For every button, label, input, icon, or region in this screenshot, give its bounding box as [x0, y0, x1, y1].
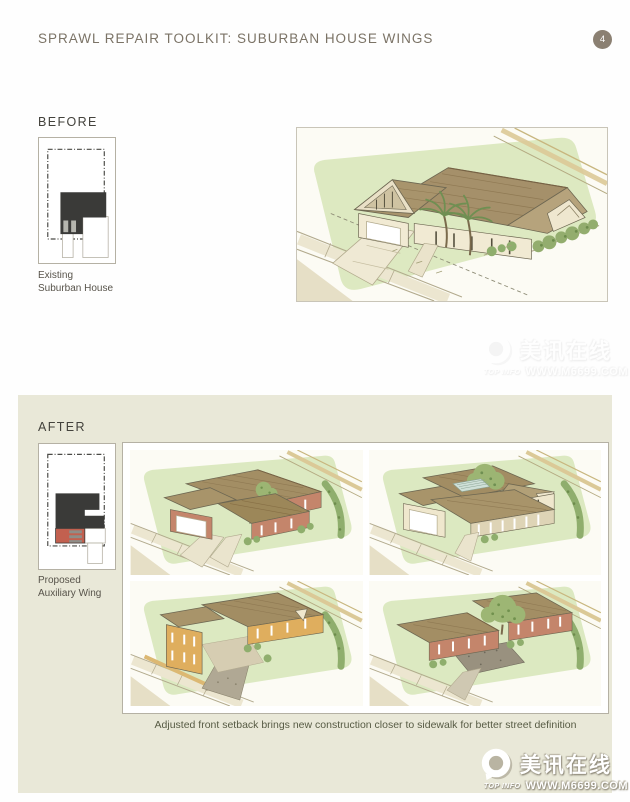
watermark-logo-icon — [478, 330, 516, 370]
after-label: AFTER — [38, 420, 86, 434]
after-plan-caption: Proposed Auxiliary Wing — [38, 574, 101, 600]
illustration-grid — [122, 442, 609, 714]
watermark-logo-icon — [478, 744, 516, 784]
watermark-url: WWW.M6699.COM — [526, 366, 628, 378]
after-illustration-1 — [130, 450, 363, 575]
before-label: BEFORE — [38, 115, 98, 129]
after-illustration-3 — [130, 581, 363, 706]
page-title: SPRAWL REPAIR TOOLKIT: SUBURBAN HOUSE WI… — [38, 31, 433, 46]
page: SPRAWL REPAIR TOOLKIT: SUBURBAN HOUSE WI… — [0, 0, 630, 802]
after-illustration-2 — [369, 450, 602, 575]
after-plan-drawing — [39, 444, 115, 569]
before-illustration — [296, 127, 608, 302]
page-number-badge: 4 — [593, 30, 612, 49]
watermark-badge: TOP INFO — [484, 783, 521, 790]
before-plan-drawing — [39, 138, 115, 263]
watermark-bottom: 美讯在线 TOP INFO WWW.M6699.COM — [478, 744, 628, 792]
watermark-brand: 美讯在线 — [520, 749, 612, 779]
before-plan-caption: Existing Suburban House — [38, 269, 113, 295]
after-caption: Adjusted front setback brings new constr… — [122, 719, 609, 731]
after-panel: AFTER Proposed Auxiliary Wing — [18, 395, 612, 793]
after-illustration-4 — [369, 581, 602, 706]
after-plan-diagram — [38, 443, 116, 570]
watermark-brand: 美讯在线 — [520, 335, 612, 365]
before-plan-diagram — [38, 137, 116, 264]
watermark-url: WWW.M6699.COM — [526, 780, 628, 792]
watermark-mid: 美讯在线 TOP INFO WWW.M6699.COM — [478, 330, 628, 378]
before-house-drawing — [297, 128, 607, 301]
watermark-badge: TOP INFO — [484, 369, 521, 376]
